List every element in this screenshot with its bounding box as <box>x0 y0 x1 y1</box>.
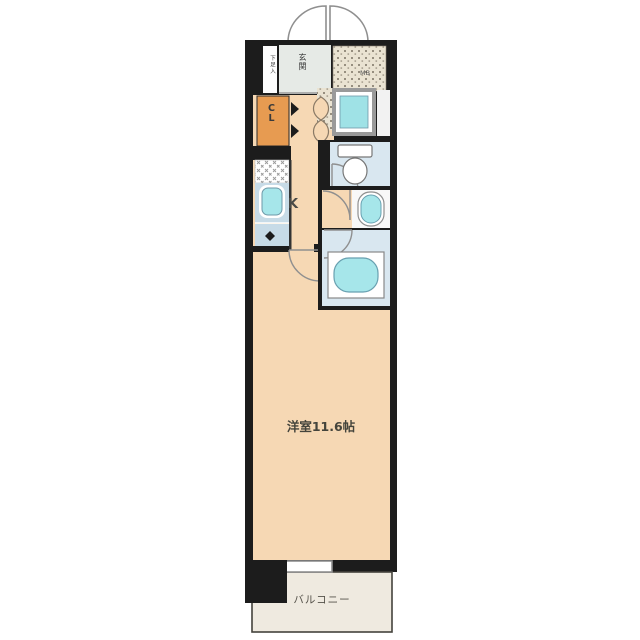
counter-edge-wall <box>289 160 292 250</box>
balcony-side-wall <box>245 560 287 603</box>
washbasin-icon <box>361 195 381 223</box>
kitchen-sink-icon <box>262 188 282 215</box>
meter-box <box>333 46 386 91</box>
range-area <box>255 160 289 183</box>
bathroom <box>318 228 390 310</box>
floor-plan-canvas: 下足入 玄関 MB CL K 洋室11.6帖 バルコニー <box>0 0 640 640</box>
closet <box>257 96 289 146</box>
wall-below-closet <box>253 146 291 160</box>
entrance-floor <box>279 45 331 94</box>
wall-left-of-door <box>253 246 289 252</box>
pipe-space <box>377 90 390 136</box>
toilet-room <box>318 140 390 190</box>
floor-plan-drawing <box>0 0 640 640</box>
bathtub-icon <box>334 258 378 292</box>
entrance-door-arcs-icon <box>288 6 368 42</box>
toilet-tank-icon <box>338 145 372 157</box>
washer-pan-icon <box>340 96 368 128</box>
washroom <box>318 186 390 232</box>
shoe-cabinet <box>263 46 277 93</box>
toilet-bowl-icon <box>343 158 367 184</box>
